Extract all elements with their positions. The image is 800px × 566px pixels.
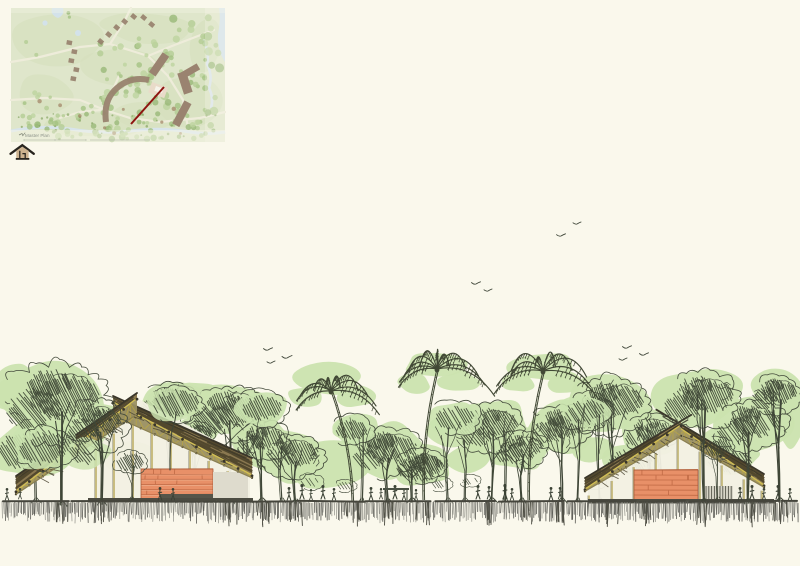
svg-text:Master Plan: Master Plan [25,133,50,138]
